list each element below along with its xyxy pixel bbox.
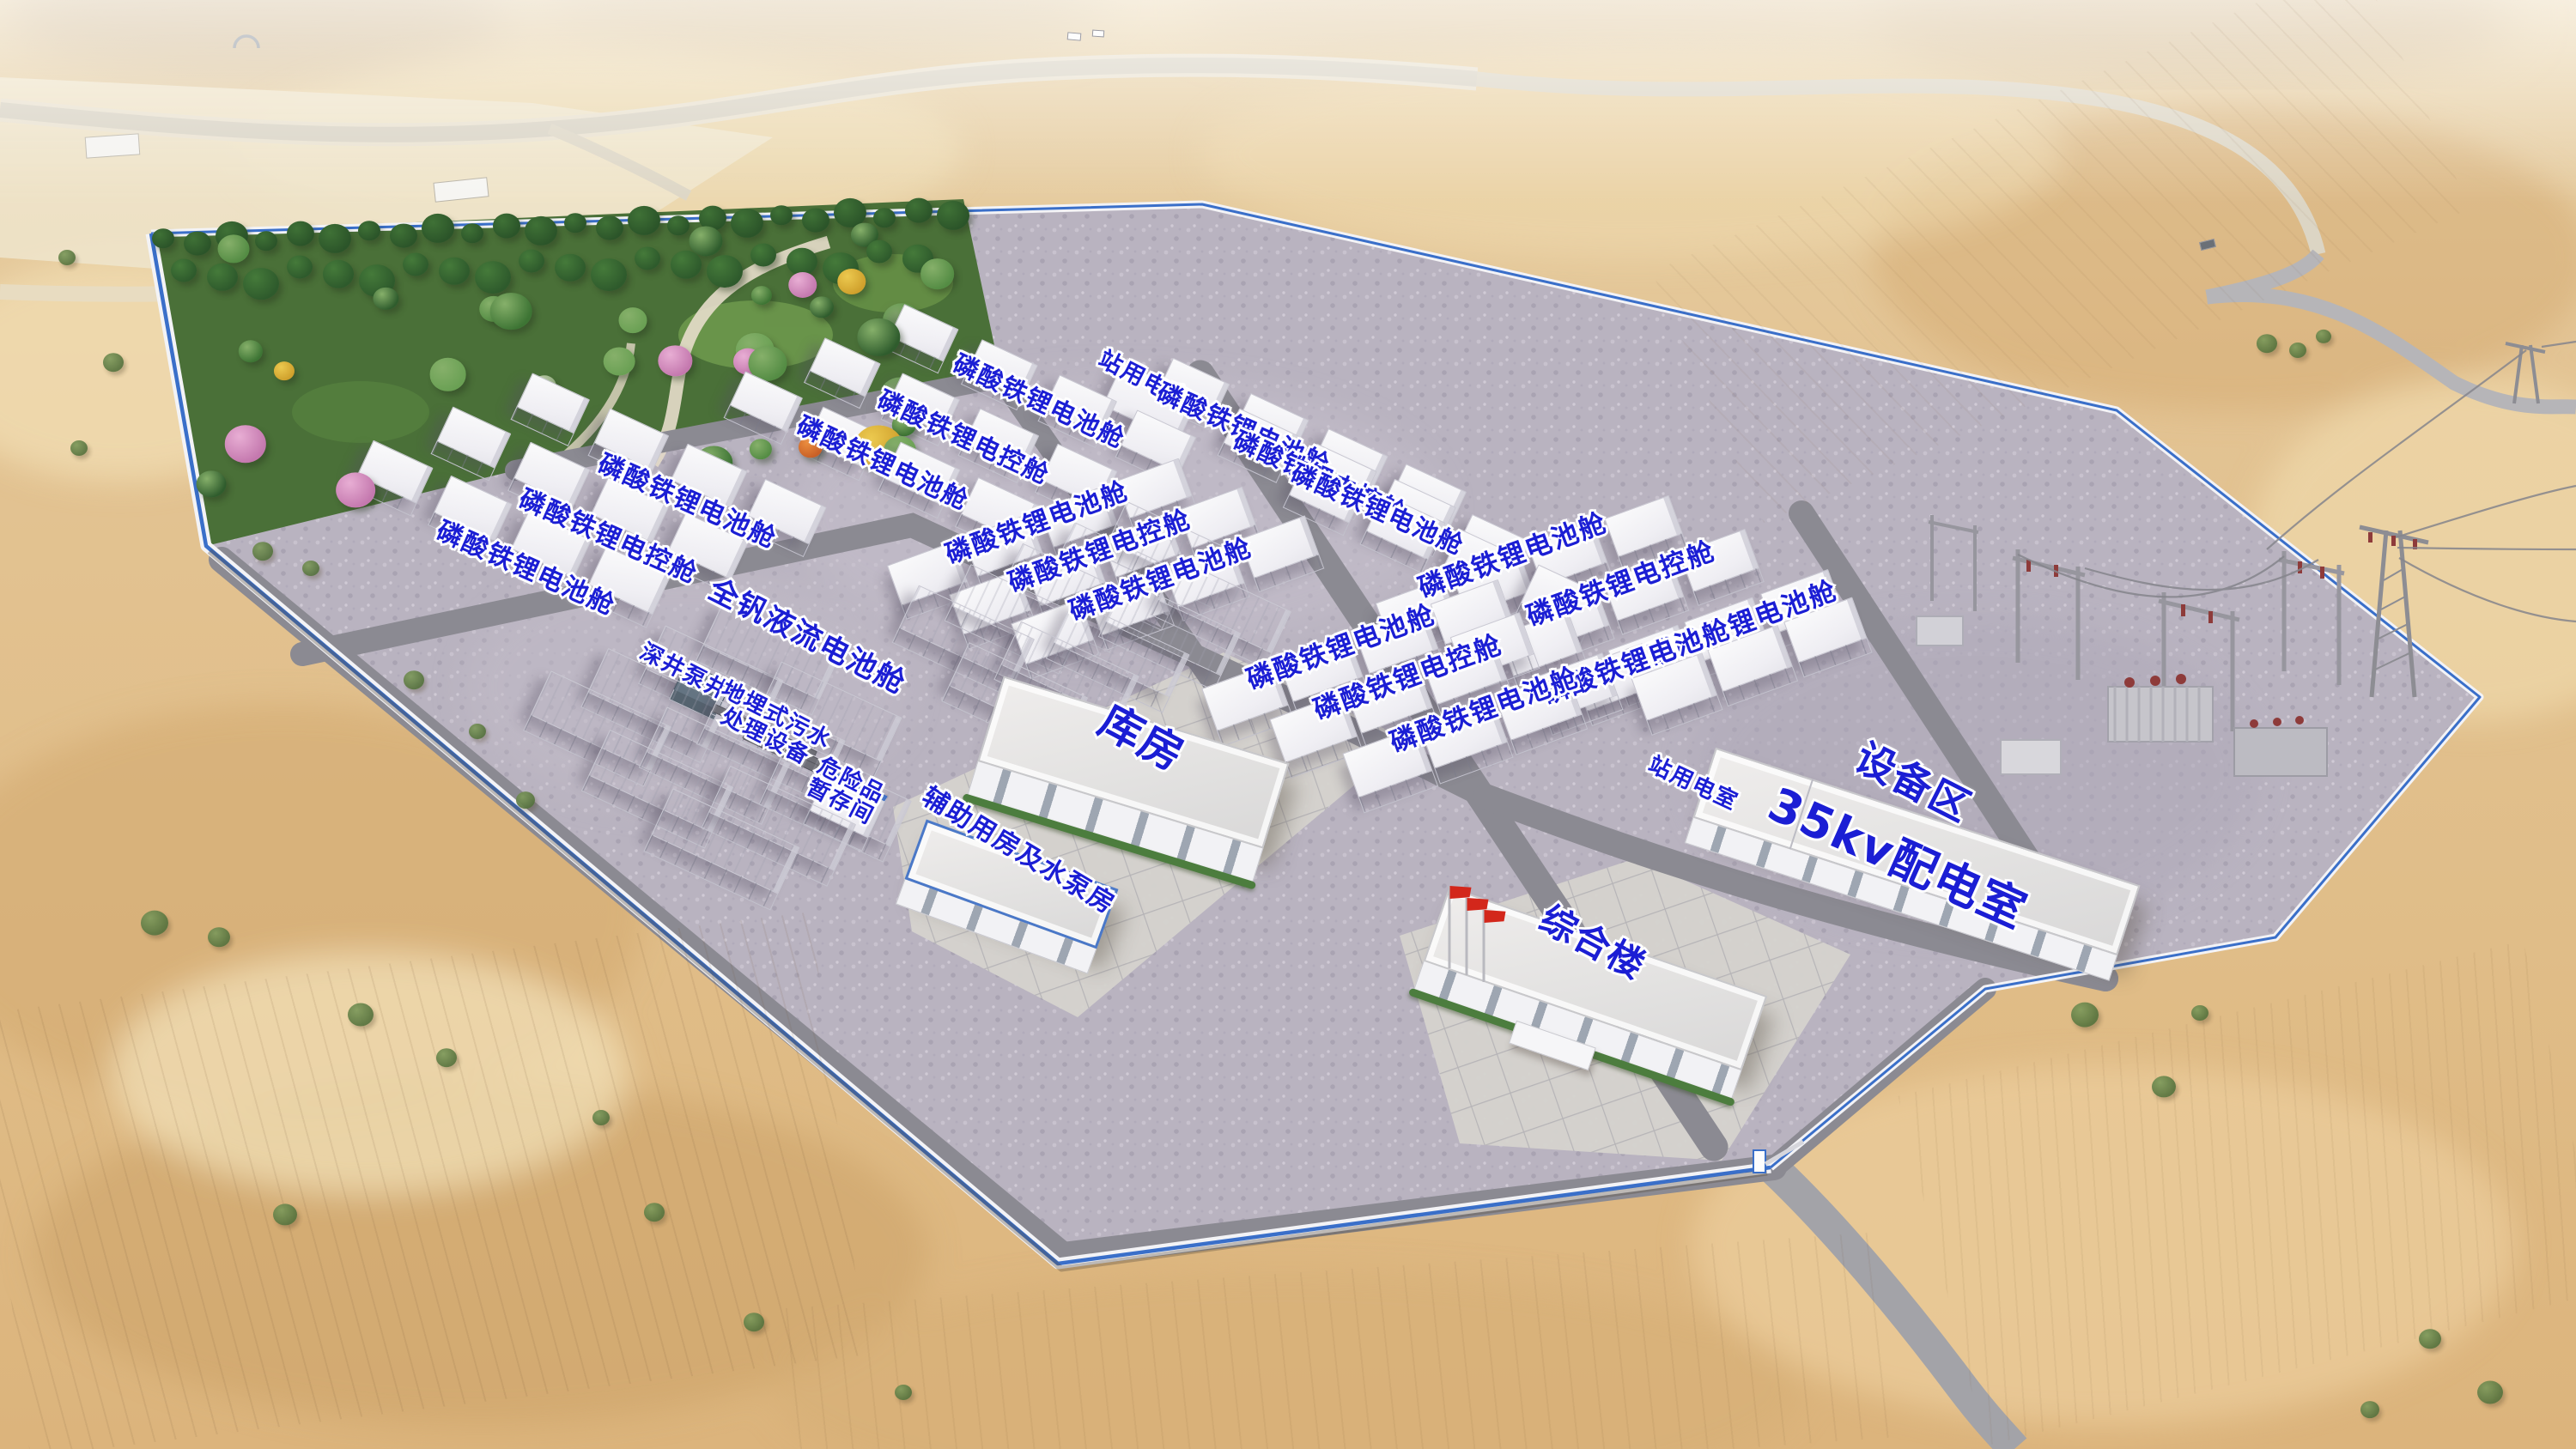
desert-shrub <box>895 1385 912 1400</box>
tree <box>591 258 627 291</box>
tree <box>937 200 969 229</box>
tree <box>519 250 544 273</box>
flagpole <box>1483 910 1485 982</box>
tree <box>224 425 265 463</box>
desert-shrub <box>2360 1401 2379 1418</box>
desert-shrub <box>2289 343 2306 358</box>
vehicle <box>1092 30 1105 38</box>
tree <box>525 215 557 245</box>
tree <box>390 223 417 248</box>
desert-shrub <box>348 1003 374 1027</box>
desert-shrub <box>2152 1076 2176 1097</box>
tree <box>750 244 776 267</box>
tree <box>336 472 375 507</box>
desert-shrub <box>516 791 535 809</box>
tree <box>429 358 466 391</box>
red-flag <box>1485 910 1506 923</box>
tree <box>422 214 454 243</box>
tree <box>493 214 520 239</box>
tree <box>243 268 279 300</box>
desert-shrub <box>436 1048 457 1067</box>
desert-shrub <box>252 542 273 561</box>
tree <box>920 258 955 289</box>
tree <box>239 340 263 362</box>
tree <box>731 208 763 237</box>
desert-shrub <box>141 911 168 936</box>
desert-shrub <box>2191 1005 2208 1021</box>
desert-shrub <box>644 1203 665 1222</box>
desert-shrub <box>103 353 124 372</box>
red-flag <box>1467 898 1489 911</box>
tree <box>403 252 428 276</box>
tree <box>475 261 511 294</box>
tree <box>596 215 623 240</box>
tree <box>905 198 933 223</box>
tree <box>287 221 314 246</box>
desert-shrub <box>302 561 319 576</box>
tree <box>750 439 772 459</box>
tree <box>802 208 829 233</box>
tree <box>197 470 227 497</box>
flagpole <box>1449 886 1451 968</box>
tree <box>274 361 295 380</box>
tree <box>707 255 743 288</box>
vehicle <box>1067 32 1082 40</box>
red-flag <box>1450 886 1472 899</box>
desert-shrub <box>273 1203 297 1225</box>
desert-shrub <box>58 250 76 265</box>
tree <box>628 206 660 235</box>
desert-shrub <box>70 440 88 456</box>
tree <box>619 307 647 333</box>
tree <box>490 293 532 330</box>
tree <box>751 286 772 305</box>
tree <box>635 246 660 270</box>
tree <box>604 347 635 375</box>
aerial-site-rendering: 磷酸铁锂电池舱磷酸铁锂电控舱磷酸铁锂电池舱磷酸铁锂电池舱磷酸铁锂电控舱磷酸铁锂电… <box>0 0 2576 1449</box>
desert-shrub <box>2477 1381 2503 1404</box>
tree <box>287 256 313 279</box>
desert-shrub <box>592 1110 610 1125</box>
desert-shrub <box>404 670 424 689</box>
tree <box>218 234 250 263</box>
flagpole <box>1466 898 1468 975</box>
tree <box>184 231 211 256</box>
desert-shrub <box>2071 1003 2099 1028</box>
tree <box>319 223 351 252</box>
desert-shrub <box>744 1313 764 1331</box>
tree <box>171 259 197 282</box>
tree <box>866 240 892 264</box>
desert-shrub <box>469 724 486 739</box>
desert-shrub <box>2257 334 2277 353</box>
